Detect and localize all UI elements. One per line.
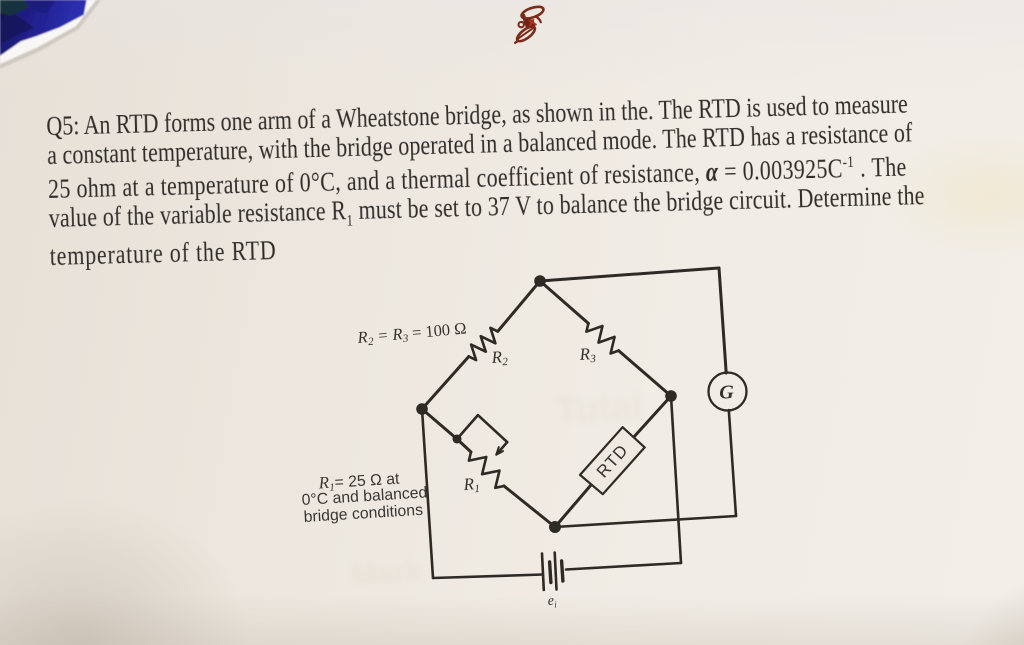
svg-text:R3: R3 <box>578 344 597 366</box>
svg-text:R1= 25 Ω at: R1= 25 Ω at <box>317 469 401 495</box>
svg-text:R1: R1 <box>462 474 480 496</box>
svg-text:RTD: RTD <box>593 441 632 482</box>
svg-text:G: G <box>719 382 734 404</box>
svg-text:0°C and balanced: 0°C and balanced <box>301 484 428 509</box>
svg-text:bridge conditions: bridge conditions <box>303 502 423 526</box>
svg-text:R2: R2 <box>490 347 509 369</box>
svg-text:ei: ei <box>547 593 557 610</box>
svg-text:R2 = R3 = 100 Ω: R2 = R3 = 100 Ω <box>356 319 468 350</box>
